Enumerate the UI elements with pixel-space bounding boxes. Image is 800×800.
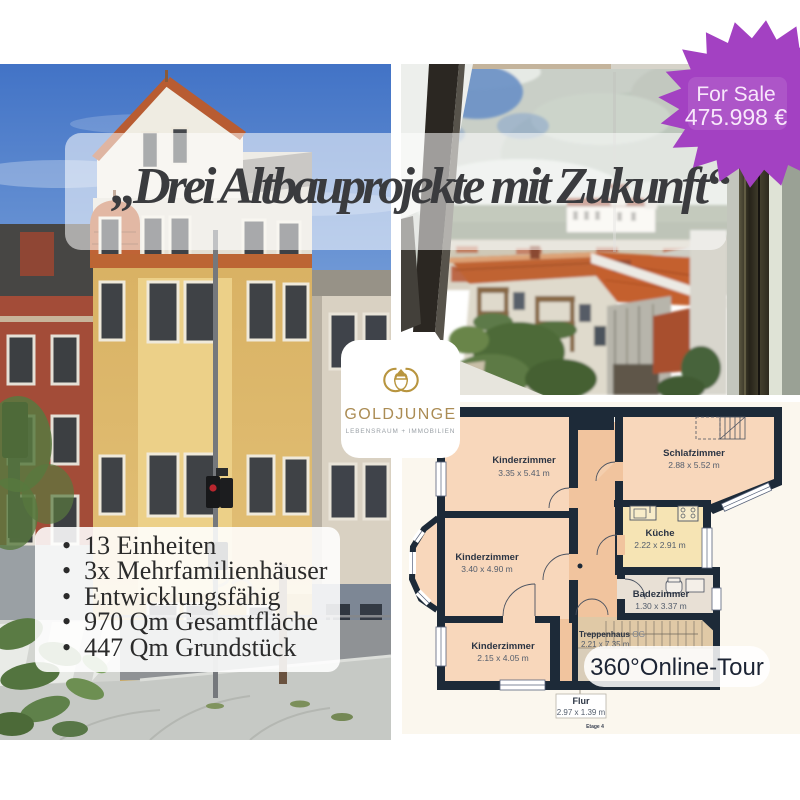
svg-text:1.30 x 3.37 m: 1.30 x 3.37 m — [635, 601, 687, 611]
svg-text:3.40 x 4.90 m: 3.40 x 4.90 m — [461, 564, 513, 574]
svg-text:Treppenhaus OG: Treppenhaus OG — [579, 630, 645, 639]
svg-text:GOLDJUNGE: GOLDJUNGE — [344, 406, 456, 423]
svg-text:Kinderzimmer: Kinderzimmer — [492, 455, 556, 466]
svg-text:3.35 x 5.41 m: 3.35 x 5.41 m — [498, 468, 550, 478]
svg-text:2.15 x 4.05 m: 2.15 x 4.05 m — [477, 653, 529, 663]
svg-text:Badezimmer: Badezimmer — [633, 589, 690, 600]
svg-text:Kinderzimmer: Kinderzimmer — [471, 641, 535, 652]
svg-text:Schlafzimmer: Schlafzimmer — [663, 448, 725, 459]
svg-text:Etage 4: Etage 4 — [586, 724, 604, 730]
svg-text:For Sale: For Sale — [696, 83, 775, 106]
svg-text:2.97 x 1.39 m: 2.97 x 1.39 m — [557, 708, 606, 717]
svg-text:2.22 x 2.91 m: 2.22 x 2.91 m — [634, 540, 686, 550]
svg-text:360°Online-Tour: 360°Online-Tour — [590, 654, 764, 681]
svg-text:Flur: Flur — [573, 696, 590, 706]
svg-text:Küche: Küche — [645, 528, 674, 539]
svg-text:475.998 €: 475.998 € — [685, 104, 788, 130]
svg-text:LEBENSRAUM + IMMOBILIEN: LEBENSRAUM + IMMOBILIEN — [346, 428, 456, 435]
svg-text:2.88 x 5.52 m: 2.88 x 5.52 m — [668, 460, 720, 470]
svg-text:Kinderzimmer: Kinderzimmer — [455, 552, 519, 563]
